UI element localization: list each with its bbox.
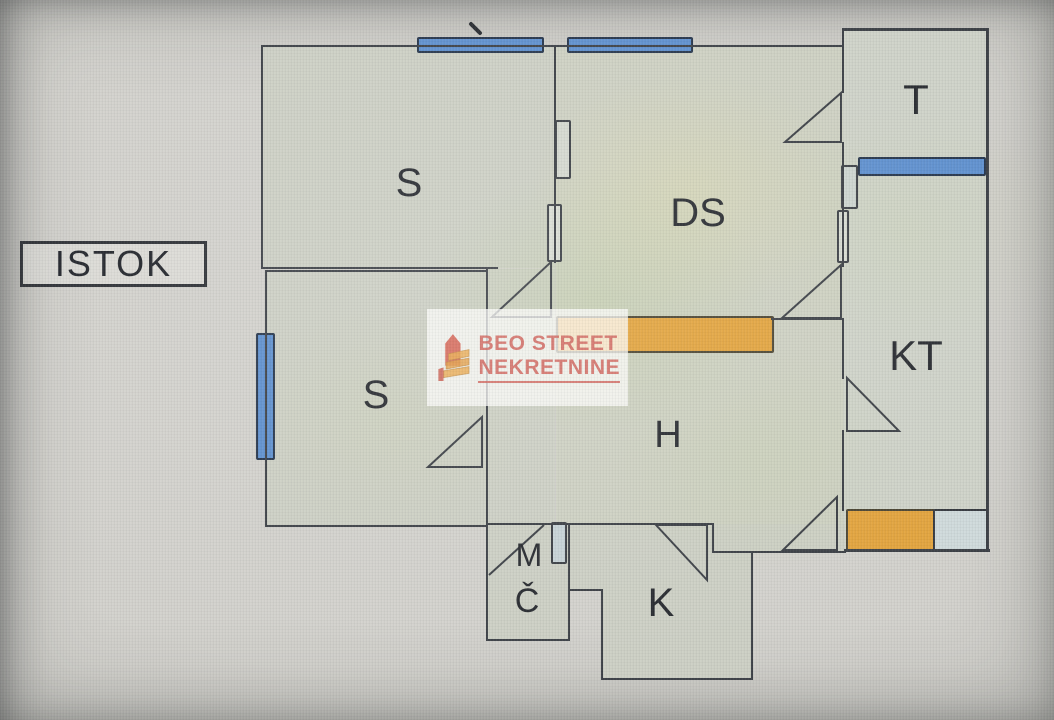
door-leaf-upper (555, 120, 571, 179)
room-label-kitchen: K (648, 583, 675, 623)
door-leaf-wc (551, 522, 567, 564)
brand-building-icon (435, 327, 472, 389)
room-area-living-hall (556, 46, 843, 524)
wall-segment (261, 45, 263, 269)
bathroom-fixture-orange (846, 509, 935, 551)
room-area-kitchen-lower (603, 591, 752, 680)
wall-segment (265, 270, 488, 272)
wall-segment (771, 318, 844, 320)
orientation-label: ISTOK (55, 243, 172, 285)
orientation-badge: ISTOK (20, 241, 207, 287)
wall-segment (712, 551, 846, 553)
wall-segment (844, 549, 990, 552)
wall-segment (712, 523, 714, 553)
room-label-bathroom: KT (889, 335, 943, 377)
wall-segment (842, 430, 844, 511)
watermark-line1: BEO STREET (478, 332, 620, 356)
room-label-living-room: DS (670, 193, 726, 233)
wall-segment (842, 28, 989, 31)
room-label-c: Č (515, 584, 540, 618)
room-label-bedroom-bottom: S (363, 375, 390, 415)
wall-segment (555, 45, 844, 47)
wall-segment (554, 45, 556, 263)
wall-segment (487, 639, 570, 641)
room-label-m: M (516, 539, 543, 571)
wall-segment (601, 589, 603, 680)
floor-plan: S S DS T KT H M Č K ISTOK BEO STREET NEK… (0, 0, 1054, 720)
watermark-line2: NEKRETNINE (478, 356, 620, 383)
wall-segment (842, 28, 844, 93)
wall-segment (265, 525, 488, 527)
wall-segment (751, 551, 753, 680)
wall-segment (986, 28, 989, 552)
wall-segment (261, 45, 557, 47)
wall-segment (601, 678, 753, 680)
watermark: BEO STREET NEKRETNINE (427, 309, 628, 406)
room-label-hallway: H (654, 416, 681, 454)
wall-segment (842, 318, 844, 379)
wall-segment (265, 270, 267, 527)
wall-segment (568, 589, 603, 591)
wall-segment (486, 523, 714, 525)
wall-segment (261, 267, 498, 269)
watermark-text: BEO STREET NEKRETNINE (478, 332, 620, 382)
room-label-toilet: T (903, 79, 929, 121)
compass-tick (471, 24, 480, 33)
wall-segment (568, 523, 570, 641)
room-label-bedroom-top: S (396, 163, 423, 203)
wall-segment (842, 142, 844, 267)
room-area-bedroom-top (262, 46, 555, 268)
bathroom-fixture-pale (933, 509, 989, 551)
window-right (858, 157, 986, 176)
